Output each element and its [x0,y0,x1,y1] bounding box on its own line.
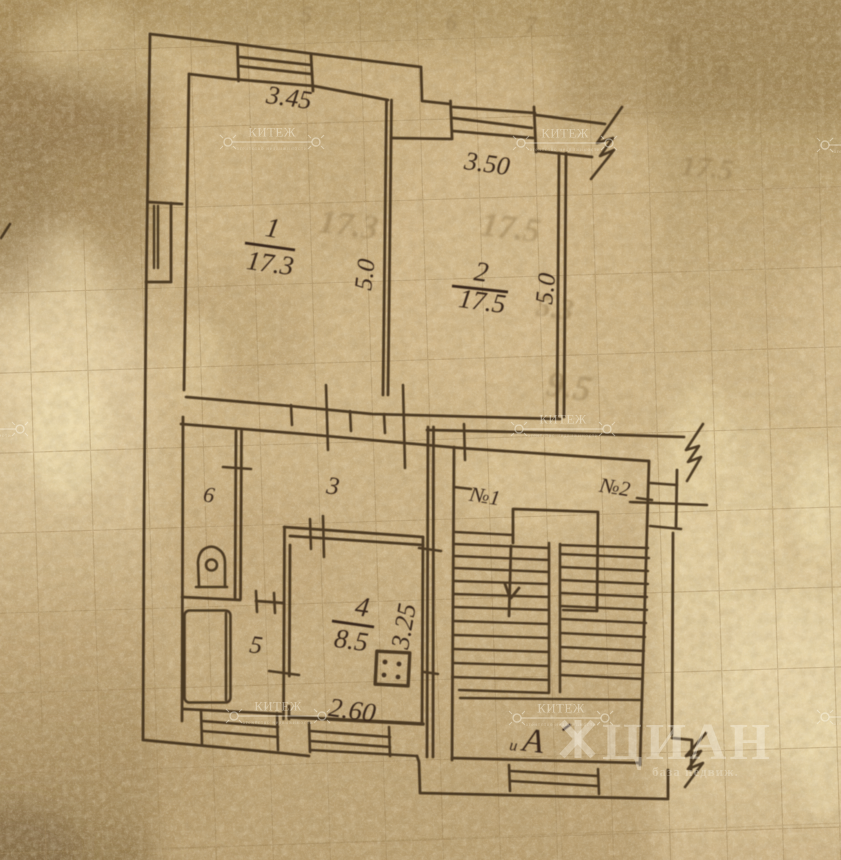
svg-text:5.0: 5.0 [531,271,561,305]
svg-text:9: 9 [716,59,729,88]
svg-text:база недвиж.: база недвиж. [652,764,739,779]
svg-text:6: 6 [445,10,459,37]
svg-text:9.5: 9.5 [544,363,594,409]
svg-text:8.5: 8.5 [332,623,370,657]
svg-text:№2: №2 [597,473,632,502]
svg-text:ЦИАН: ЦИАН [602,714,773,771]
svg-text:17.3: 17.3 [317,203,381,247]
svg-text:5: 5 [300,2,314,29]
svg-text:№1: №1 [467,482,502,511]
svg-text:8: 8 [668,29,681,58]
svg-text:5.0: 5.0 [350,257,381,292]
svg-text:17.5: 17.5 [479,206,543,250]
svg-text:17.5: 17.5 [679,149,735,187]
svg-text:7: 7 [525,13,538,39]
